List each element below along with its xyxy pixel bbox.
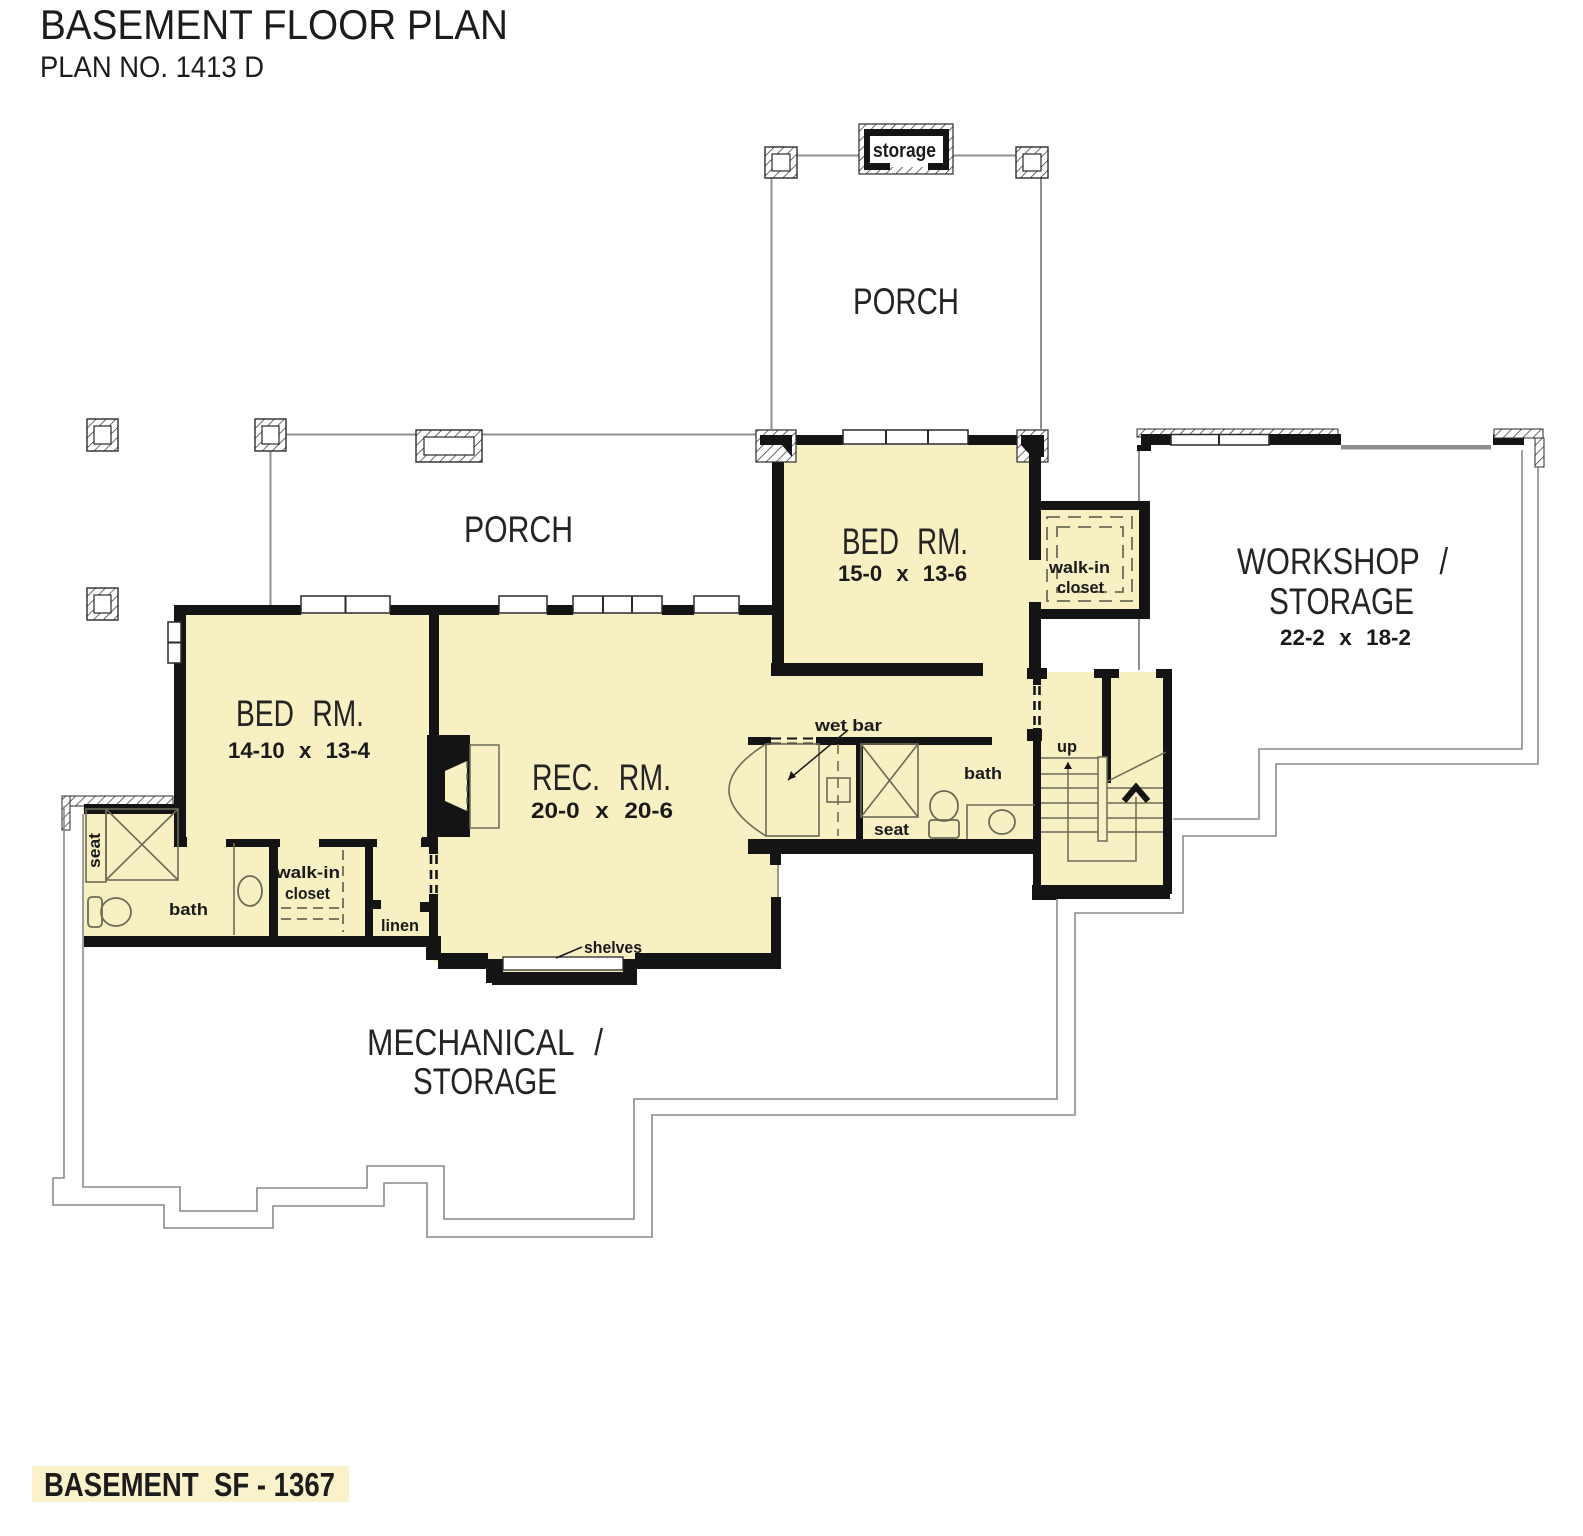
svg-text:BED RM.: BED RM. [236, 693, 364, 734]
svg-text:PORCH: PORCH [464, 509, 573, 550]
svg-text:BASEMENT SF - 1367: BASEMENT SF - 1367 [44, 1466, 335, 1503]
svg-text:bath: bath [169, 900, 208, 919]
svg-text:bath: bath [964, 764, 1002, 783]
svg-text:22-2 x 18-2: 22-2 x 18-2 [1280, 625, 1411, 650]
svg-text:closet: closet [285, 884, 330, 903]
svg-text:20-0 x 20-6: 20-0 x 20-6 [531, 798, 673, 823]
svg-text:BED RM.: BED RM. [842, 521, 968, 562]
svg-text:WORKSHOP /: WORKSHOP / [1237, 541, 1449, 582]
svg-text:linen: linen [381, 916, 419, 935]
svg-text:walk-in: walk-in [1048, 558, 1110, 577]
svg-text:PLAN NO. 1413 D: PLAN NO. 1413 D [40, 51, 264, 84]
svg-text:shelves: shelves [584, 938, 642, 957]
svg-text:BASEMENT FLOOR PLAN: BASEMENT FLOOR PLAN [40, 1, 508, 48]
svg-text:STORAGE: STORAGE [1269, 581, 1414, 622]
svg-text:MECHANICAL /: MECHANICAL / [367, 1022, 604, 1063]
svg-text:storage: storage [873, 140, 936, 162]
svg-text:wet bar: wet bar [814, 716, 883, 735]
svg-text:14-10 x 13-4: 14-10 x 13-4 [228, 738, 371, 763]
svg-text:REC. RM.: REC. RM. [532, 757, 671, 798]
svg-text:up: up [1057, 737, 1077, 756]
svg-text:seat: seat [85, 833, 104, 868]
svg-text:15-0 x 13-6: 15-0 x 13-6 [838, 561, 967, 586]
svg-text:STORAGE: STORAGE [413, 1061, 557, 1102]
svg-text:walk-in: walk-in [275, 863, 340, 882]
svg-text:seat: seat [874, 820, 909, 839]
svg-text:PORCH: PORCH [853, 281, 959, 322]
svg-text:closet: closet [1057, 578, 1104, 597]
